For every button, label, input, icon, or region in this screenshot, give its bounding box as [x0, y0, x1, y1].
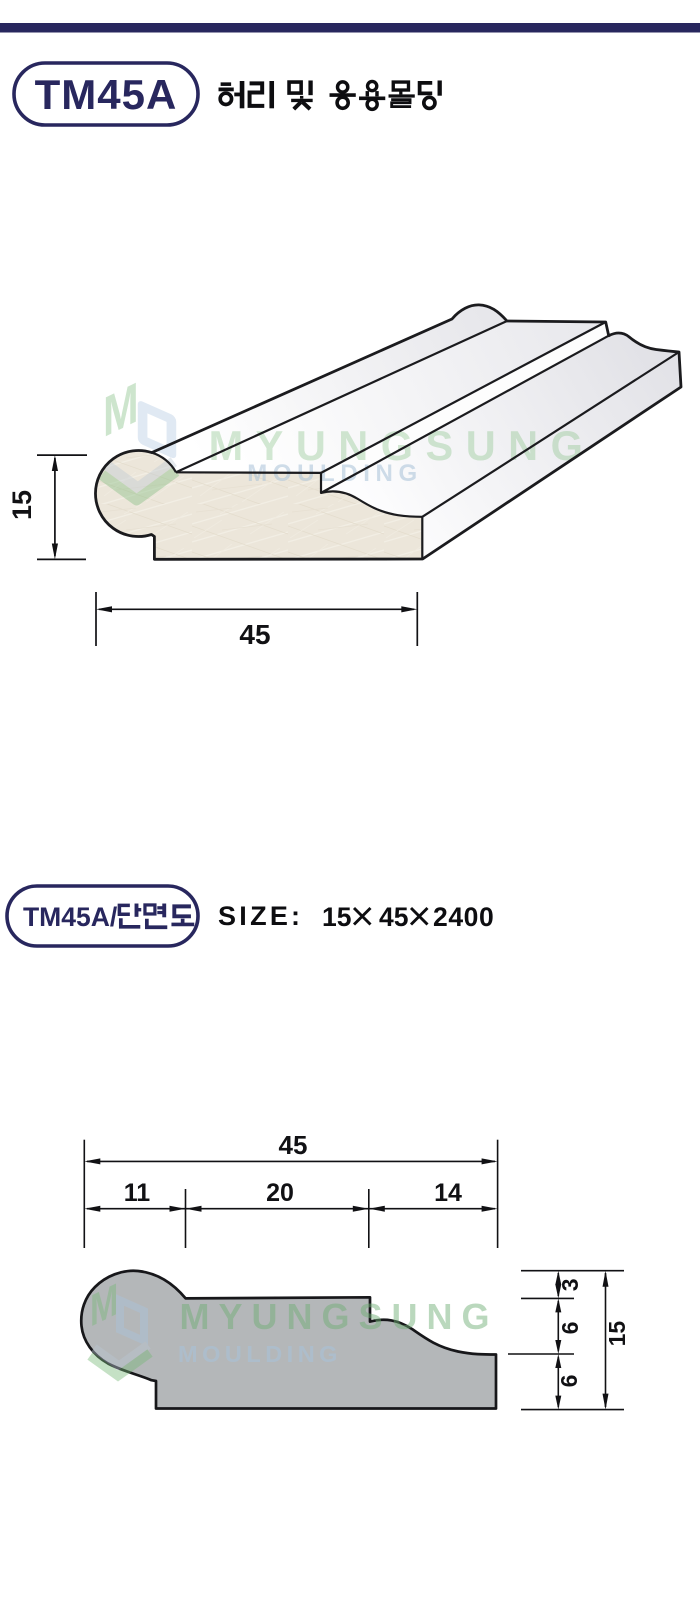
svg-text:20: 20 [266, 1179, 294, 1207]
svg-text:TM45A/: TM45A/ [23, 902, 118, 932]
svg-text:45: 45 [279, 1130, 308, 1160]
svg-text::: : [291, 901, 300, 931]
svg-text:3: 3 [557, 1278, 583, 1291]
svg-text:6: 6 [556, 1375, 582, 1388]
svg-text:M: M [103, 370, 139, 450]
svg-text:SIZE: SIZE [218, 901, 291, 931]
svg-text:TM45A: TM45A [35, 71, 178, 118]
svg-text:11: 11 [124, 1179, 151, 1207]
svg-text:2400: 2400 [433, 902, 494, 932]
svg-text:45: 45 [379, 902, 408, 932]
svg-text:MYUNGSUNG: MYUNGSUNG [179, 1296, 498, 1337]
svg-text:14: 14 [434, 1179, 462, 1207]
svg-text:6: 6 [557, 1322, 583, 1335]
svg-text:45: 45 [239, 619, 270, 650]
svg-text:15: 15 [7, 490, 37, 520]
svg-text:15: 15 [322, 902, 351, 932]
svg-text:MOULDING: MOULDING [178, 1341, 342, 1367]
svg-text:15: 15 [604, 1321, 630, 1347]
